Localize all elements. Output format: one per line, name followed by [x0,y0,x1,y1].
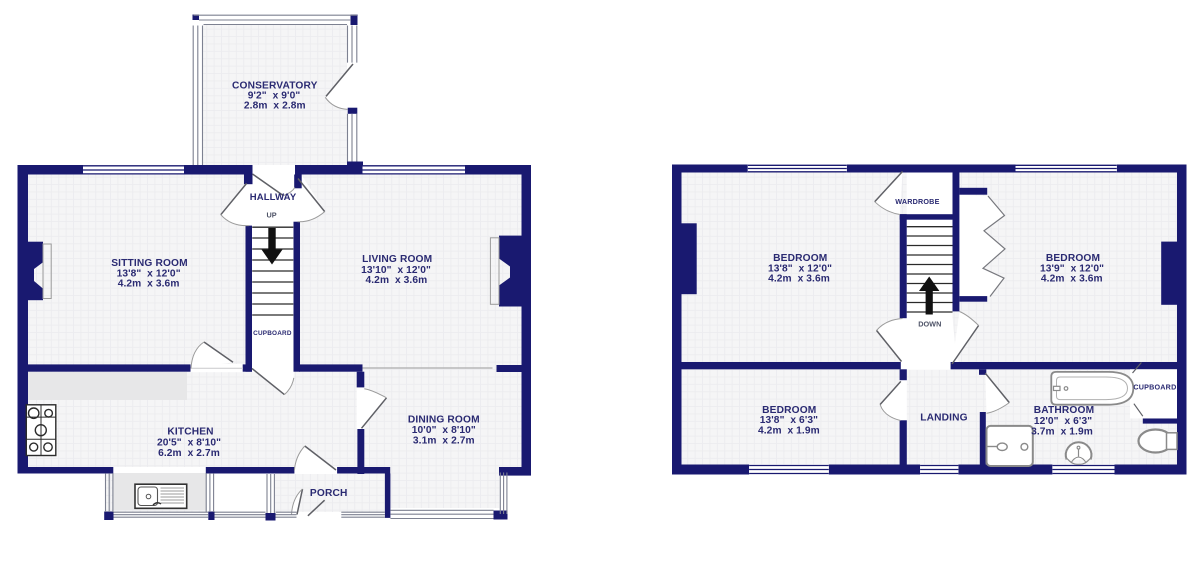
svg-text:13'10" x 12'0": 13'10" x 12'0" [361,265,431,276]
svg-text:KITCHEN: KITCHEN [167,427,213,438]
svg-text:UP: UP [267,211,277,220]
svg-text:12'0" x 6'3": 12'0" x 6'3" [1034,416,1092,427]
svg-text:CUPBOARD: CUPBOARD [253,330,292,337]
svg-text:4.2m x 3.6m: 4.2m x 3.6m [118,278,180,289]
svg-text:CUPBOARD: CUPBOARD [1133,383,1176,392]
svg-text:3.1m x 2.7m: 3.1m x 2.7m [413,435,475,446]
svg-text:6.2m x 2.7m: 6.2m x 2.7m [158,448,220,459]
svg-text:BEDROOM: BEDROOM [773,253,827,264]
svg-text:PORCH: PORCH [310,488,348,499]
svg-text:4.2m x 3.6m: 4.2m x 3.6m [1041,274,1103,285]
svg-text:10'0" x 8'10": 10'0" x 8'10" [412,425,476,436]
svg-text:4.2m x 3.6m: 4.2m x 3.6m [365,275,427,286]
svg-text:HALLWAY: HALLWAY [250,192,297,203]
svg-text:BATHROOM: BATHROOM [1034,405,1094,416]
svg-text:BEDROOM: BEDROOM [1046,253,1100,264]
svg-text:WARDROBE: WARDROBE [895,197,939,206]
svg-text:DINING ROOM: DINING ROOM [408,415,480,426]
svg-text:3.7m x 1.9m: 3.7m x 1.9m [1031,427,1093,438]
svg-text:DOWN: DOWN [918,320,941,329]
svg-text:LIVING ROOM: LIVING ROOM [362,254,432,265]
svg-text:4.2m x 1.9m: 4.2m x 1.9m [758,425,820,436]
svg-text:4.2m x 3.6m: 4.2m x 3.6m [768,274,830,285]
svg-text:2.8m x 2.8m: 2.8m x 2.8m [244,100,306,111]
svg-text:20'5" x 8'10": 20'5" x 8'10" [157,438,221,449]
svg-text:LANDING: LANDING [920,413,967,424]
